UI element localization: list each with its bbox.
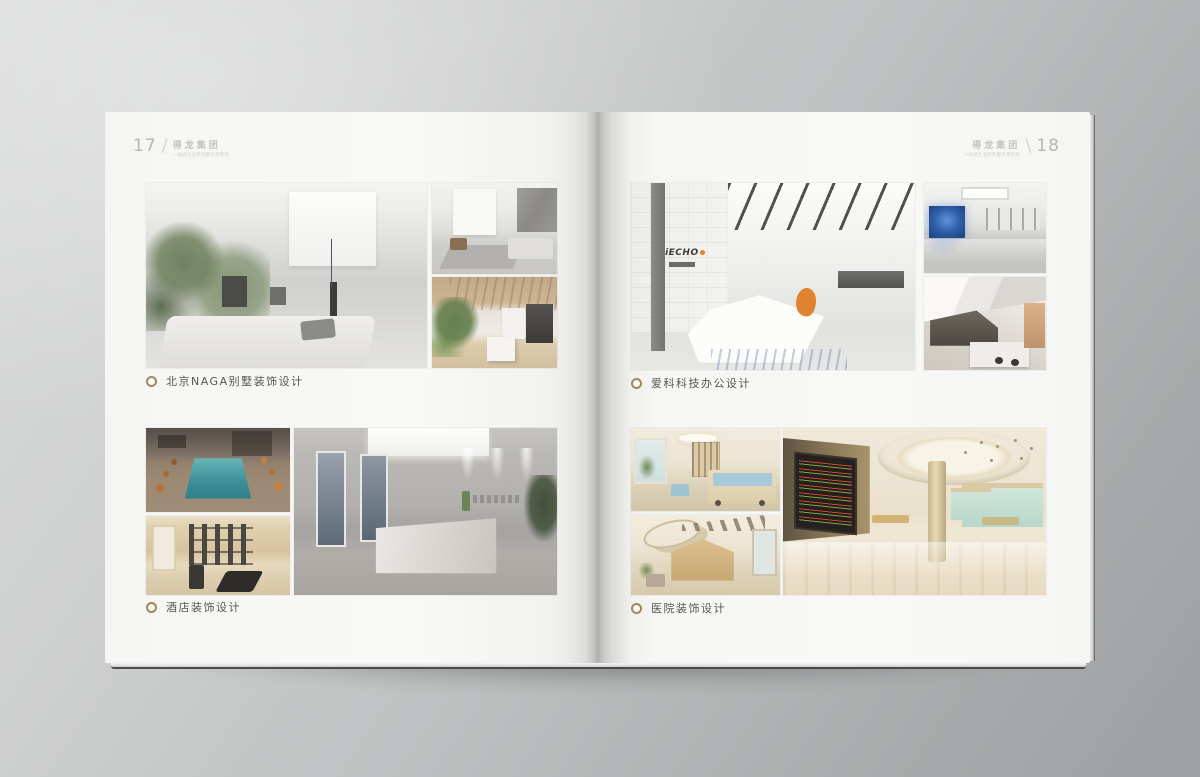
equipment-rack-shape	[189, 524, 252, 565]
photo-office-media-wall	[924, 183, 1046, 273]
left-page: 17 / 得龙集团 一站式企业装饰服务定制商	[105, 112, 598, 663]
hospital-bed-shape	[708, 470, 775, 503]
floor-reflection-shape	[783, 542, 1046, 595]
floor-lamp-shape	[331, 239, 332, 287]
white-sofa-shape	[158, 316, 376, 368]
wall-signage-shape	[473, 495, 520, 503]
stone-feature-wall-shape	[517, 188, 557, 232]
photo-office-reception-desk	[924, 277, 1046, 370]
white-cabinet-shape	[502, 308, 525, 339]
right-brand-block: 得龙集团 一站式企业装饰服务定制商	[942, 138, 1020, 160]
plant-shape	[638, 456, 656, 484]
dark-glass-wall-shape	[526, 304, 554, 342]
brochure-mockup-scene: 17 / 得龙集团 一站式企业装饰服务定制商	[0, 0, 1200, 777]
caption-bullet-icon	[146, 376, 157, 387]
cart-shape	[646, 574, 665, 587]
open-brochure: 17 / 得龙集团 一站式企业装饰服务定制商	[105, 112, 1090, 663]
reception-counter-shape	[838, 271, 903, 288]
white-wall-panel-shape	[289, 192, 376, 266]
corner-plant-shape	[523, 475, 557, 559]
brand-logotype: 得龙集团	[173, 138, 251, 151]
indoor-plants-shape	[146, 220, 270, 331]
left-page-number: 17	[133, 138, 157, 155]
left-page-header: 17 / 得龙集团 一站式企业装饰服务定制商	[133, 138, 251, 160]
weight-machine-shape	[189, 565, 203, 589]
caption-hospital: 医院装饰设计	[631, 601, 726, 615]
marble-reception-desk-shape	[376, 518, 497, 573]
photo-hospital-patient-room	[631, 428, 780, 511]
dark-pillar-shape	[651, 183, 665, 351]
right-page-number: 18	[1036, 138, 1060, 155]
caption-text: 酒店装饰设计	[166, 599, 241, 615]
caption-text: 北京NAGA别墅装饰设计	[166, 373, 304, 389]
floor-reflection-shape	[924, 239, 1046, 273]
photo-rooftop-pool	[146, 428, 290, 512]
blue-chair-shape	[671, 484, 689, 496]
blue-rug-shape	[711, 349, 847, 370]
right-page-header: 得龙集团 一站式企业装饰服务定制商 \ 18	[942, 138, 1060, 160]
photo-hotel-gym	[146, 516, 290, 595]
photo-iecho-office-lobby: iECHO	[631, 183, 915, 370]
armchair-shape	[270, 287, 287, 306]
left-header-slash: /	[162, 138, 168, 154]
photo-villa-living-room	[146, 183, 427, 368]
umbrella-dots-shape	[261, 457, 267, 463]
swimming-pool-shape	[185, 458, 251, 498]
caption-bullet-icon	[631, 603, 642, 614]
window-band-shape	[986, 208, 1040, 230]
gym-window-shape	[152, 525, 176, 571]
skylight-shape	[961, 187, 1010, 201]
caption-bullet-icon	[146, 602, 157, 613]
courtyard-garden-shape	[432, 297, 482, 357]
photo-villa-lounge	[432, 183, 557, 274]
photo-villa-courtyard-kitchen	[432, 277, 557, 368]
treadmill-shape	[215, 571, 263, 592]
logo-subtitle-bar-shape	[669, 262, 695, 268]
brand-tagline: 一站式企业装饰服务定制商	[173, 151, 229, 157]
kitchen-island-shape	[487, 337, 515, 361]
iecho-wall-logo: iECHO	[665, 248, 705, 258]
blue-led-screen-shape	[929, 206, 966, 238]
leather-chair-shape	[450, 238, 468, 251]
caption-office: 爱科科技办公设计	[631, 376, 751, 390]
dark-cabinet-shape	[222, 276, 247, 307]
caption-hotel: 酒店装饰设计	[146, 600, 241, 614]
caption-text: 爱科科技办公设计	[651, 375, 751, 391]
led-message-board-shape	[794, 451, 857, 534]
dusk-window-shape	[362, 456, 386, 540]
caption-text: 医院装饰设计	[651, 600, 726, 616]
cushion-shape	[300, 318, 335, 340]
waiting-seats-shape	[872, 515, 909, 523]
warm-accent-wall-shape	[1024, 303, 1045, 348]
photo-hospital-nurse-station	[631, 515, 780, 595]
brand-logotype: 得龙集团	[972, 138, 1020, 151]
photo-hospital-lobby	[783, 428, 1046, 595]
photo-hotel-reception	[294, 428, 557, 595]
right-page: 得龙集团 一站式企业装饰服务定制商 \ 18 iECHO	[598, 112, 1090, 663]
caption-bullet-icon	[631, 378, 642, 389]
wood-nurse-station-shape	[671, 539, 734, 581]
brand-tagline: 一站式企业装饰服务定制商	[964, 151, 1020, 157]
cactus-shape	[462, 491, 470, 511]
glass-door-shape	[752, 529, 777, 575]
right-header-slash: \	[1025, 138, 1031, 154]
caption-villa: 北京NAGA别墅装饰设计	[146, 374, 304, 388]
sofa-shape	[508, 238, 553, 260]
teal-window-band-shape	[951, 488, 990, 520]
white-volume-shape	[453, 189, 496, 235]
city-skyline-shape	[158, 435, 187, 448]
oval-ceiling-cove-shape	[878, 430, 1031, 485]
dusk-window-shape	[318, 453, 344, 545]
left-brand-block: 得龙集团 一站式企业装饰服务定制商	[173, 138, 251, 160]
